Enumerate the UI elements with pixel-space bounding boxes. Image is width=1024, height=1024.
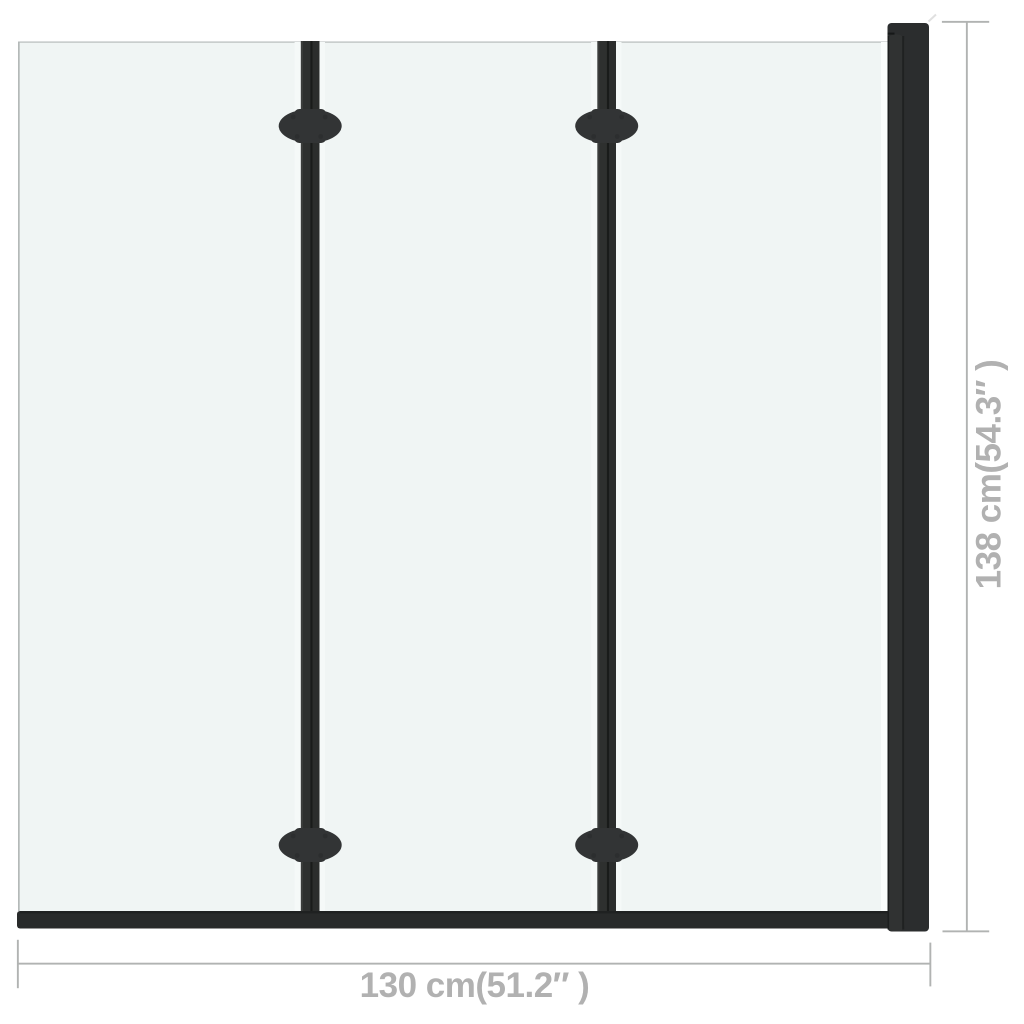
svg-text:138 cm(54.3″ ): 138 cm(54.3″ )	[970, 360, 1009, 590]
svg-text:130 cm(51.2″ ): 130 cm(51.2″ )	[360, 966, 590, 1005]
